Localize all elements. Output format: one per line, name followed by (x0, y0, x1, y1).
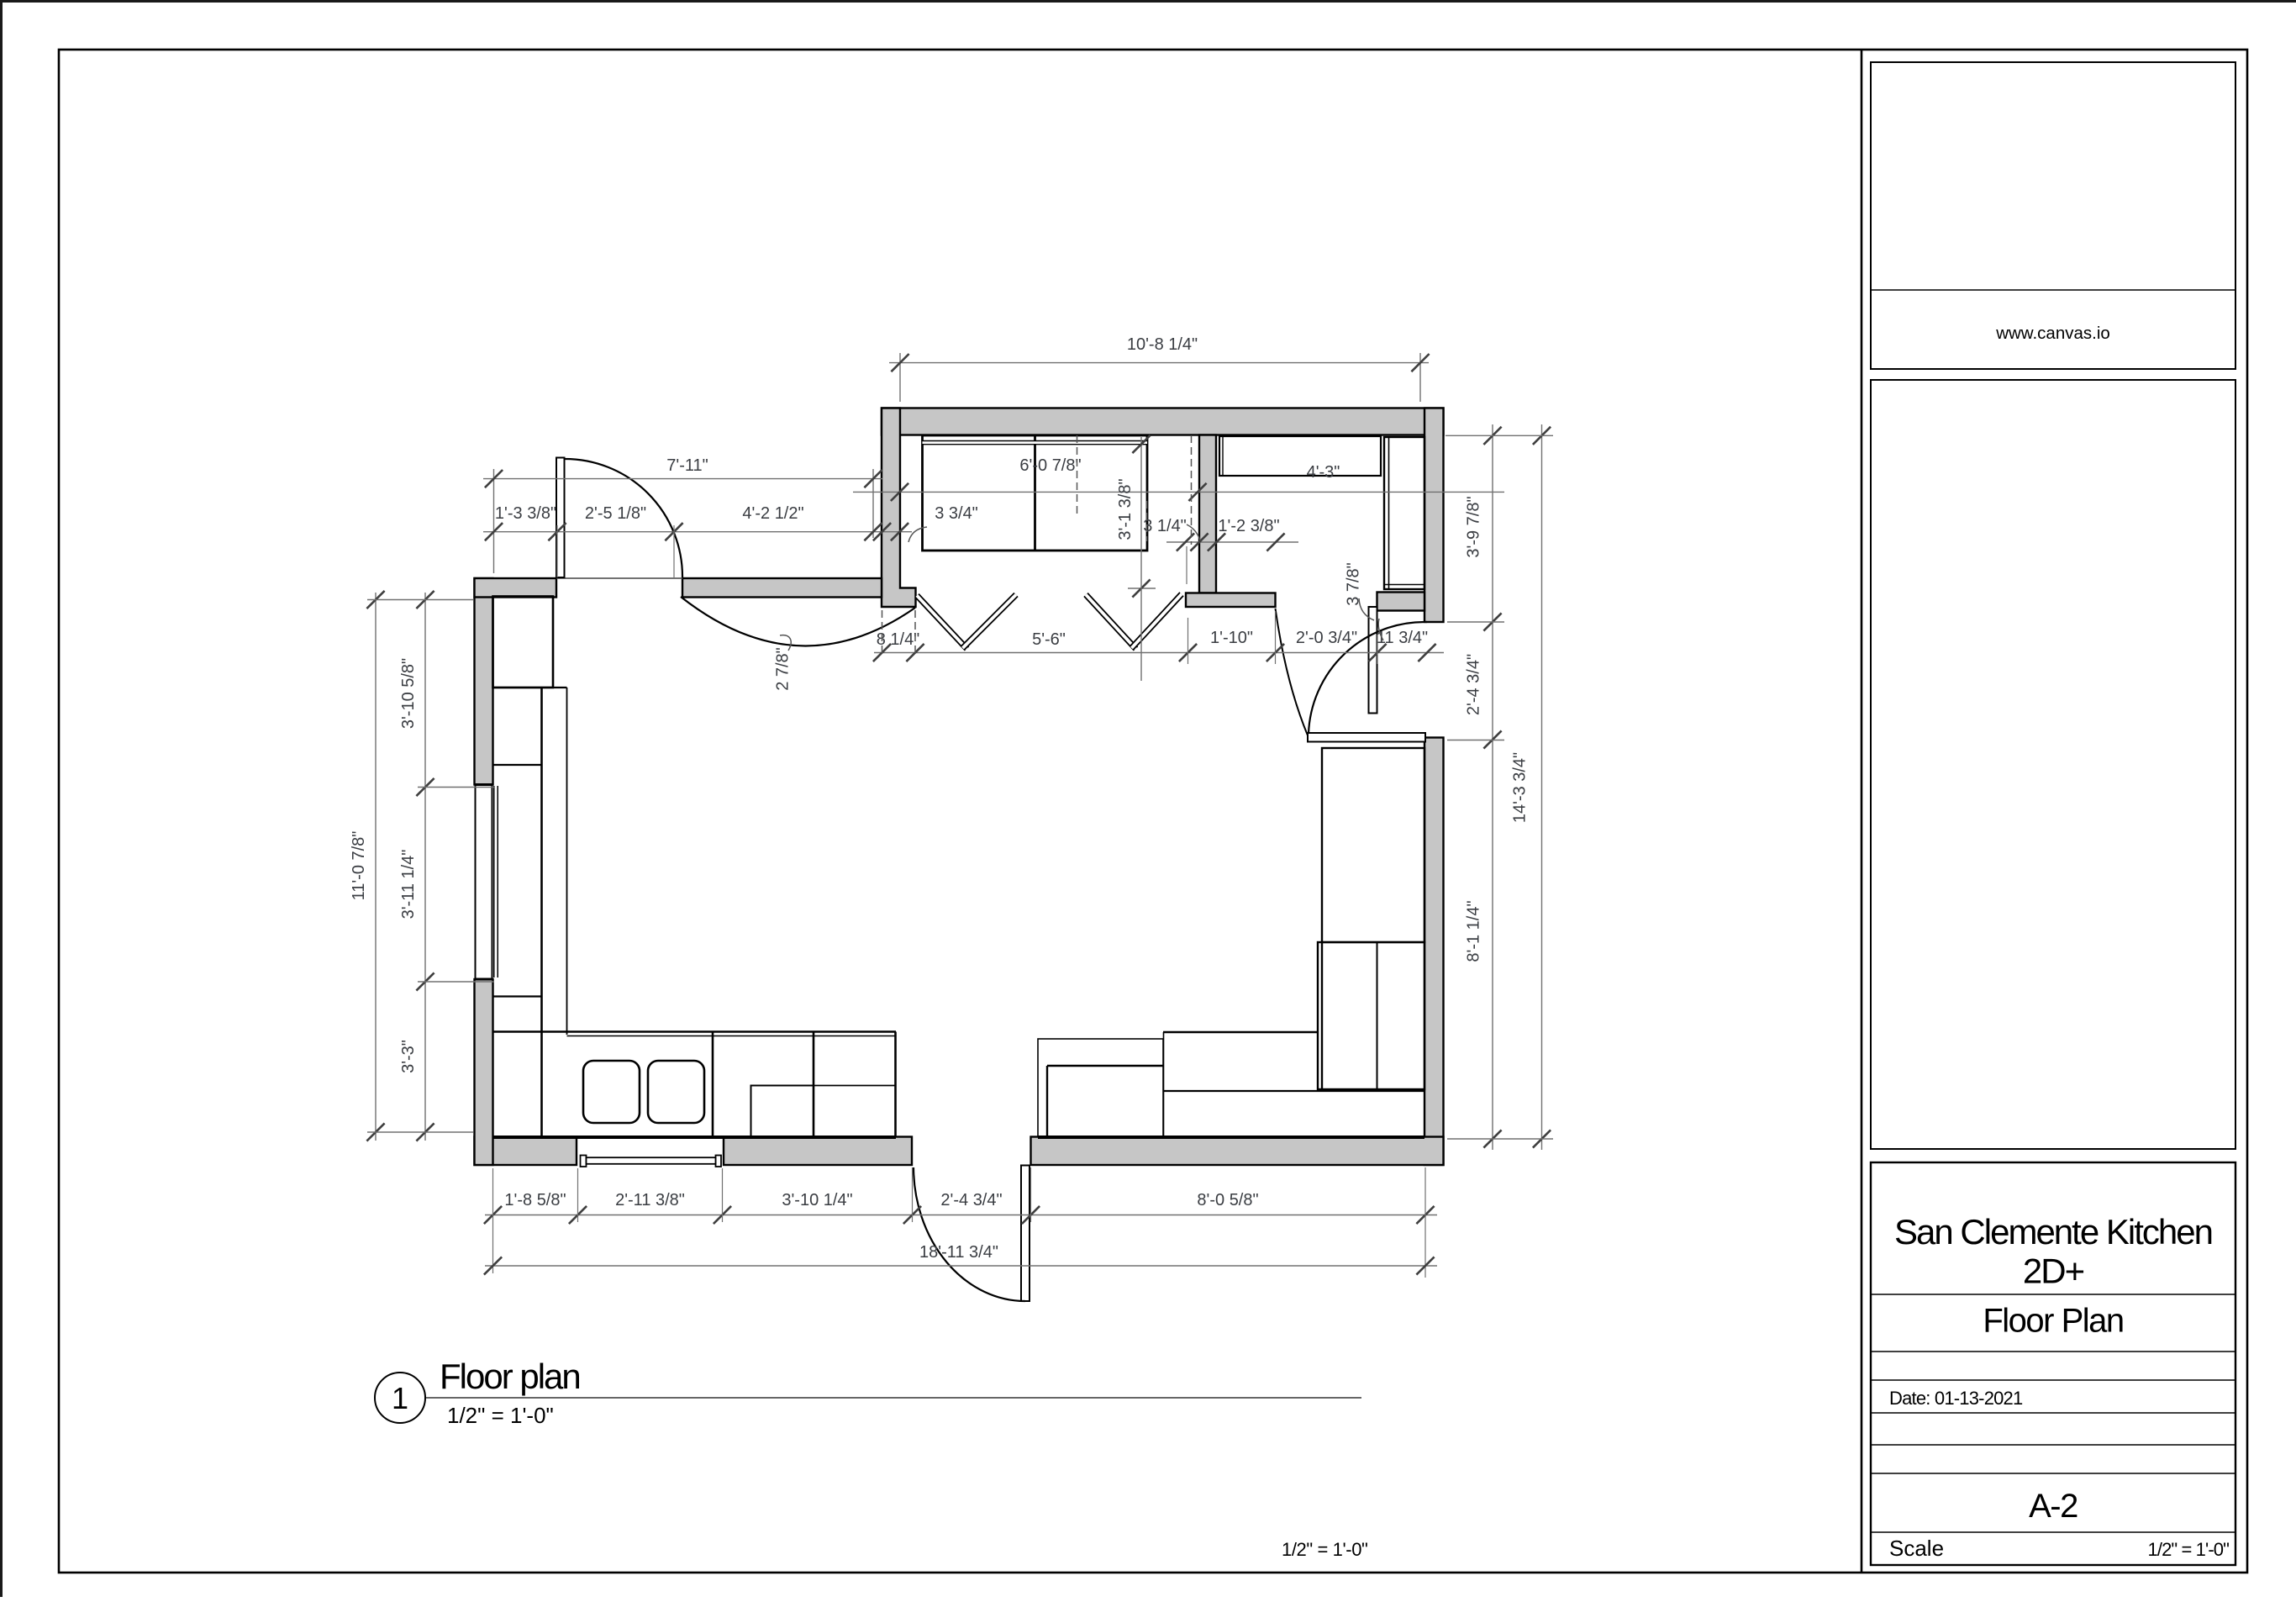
svg-text:3'-9 7/8": 3'-9 7/8" (1465, 496, 1483, 557)
svg-text:1'-10": 1'-10" (1210, 629, 1253, 647)
svg-text:www.canvas.io: www.canvas.io (1995, 324, 2110, 343)
svg-text:7'-11": 7'-11" (666, 456, 708, 475)
svg-text:1/2" = 1'-0": 1/2" = 1'-0" (447, 1403, 554, 1428)
svg-text:1'-2 3/8": 1'-2 3/8" (1218, 517, 1279, 535)
svg-text:2D+: 2D+ (2023, 1252, 2084, 1291)
svg-text:5'-6": 5'-6" (1032, 630, 1066, 649)
svg-text:2'-4 3/4": 2'-4 3/4" (1465, 654, 1483, 715)
svg-text:2'-5 1/8": 2'-5 1/8" (585, 504, 646, 523)
svg-text:8 1/4": 8 1/4" (877, 630, 920, 649)
svg-text:3'-10 1/4": 3'-10 1/4" (782, 1191, 852, 1209)
svg-text:3'-1 3/8": 3'-1 3/8" (1116, 478, 1135, 540)
svg-text:1/2" = 1'-0": 1/2" = 1'-0" (1282, 1539, 1367, 1560)
svg-text:14'-3 3/4": 14'-3 3/4" (1511, 752, 1530, 823)
svg-text:3 7/8": 3 7/8" (1345, 562, 1363, 606)
svg-text:Floor Plan: Floor Plan (1983, 1303, 2123, 1340)
svg-text:2'-4 3/4": 2'-4 3/4" (940, 1191, 1002, 1209)
svg-text:A-2: A-2 (2029, 1488, 2077, 1525)
svg-text:11 3/4": 11 3/4" (1377, 629, 1428, 647)
svg-text:3'-10 5/8": 3'-10 5/8" (399, 658, 418, 729)
svg-text:Date: 01-13-2021: Date: 01-13-2021 (1889, 1388, 2023, 1409)
svg-text:1'-3 3/8": 1'-3 3/8" (495, 504, 556, 523)
svg-text:2 7/8": 2 7/8" (774, 647, 793, 691)
svg-text:Scale: Scale (1889, 1536, 1944, 1561)
svg-text:6'-0 7/8": 6'-0 7/8" (1019, 456, 1081, 475)
svg-text:10'-8 1/4": 10'-8 1/4" (1127, 335, 1198, 354)
svg-text:1'-8 5/8": 1'-8 5/8" (504, 1191, 566, 1209)
svg-text:3'-3": 3'-3" (399, 1040, 418, 1073)
svg-text:1: 1 (392, 1381, 408, 1415)
svg-text:8'-0 5/8": 8'-0 5/8" (1197, 1191, 1258, 1209)
svg-text:11'-0 7/8": 11'-0 7/8" (350, 831, 368, 901)
svg-text:1/2" = 1'-0": 1/2" = 1'-0" (2148, 1539, 2230, 1560)
svg-text:2'-0 3/4": 2'-0 3/4" (1296, 629, 1357, 647)
svg-text:4'-3": 4'-3" (1307, 463, 1340, 482)
svg-text:4'-2 1/2": 4'-2 1/2" (742, 504, 803, 523)
svg-text:3'-11 1/4": 3'-11 1/4" (399, 850, 418, 920)
svg-text:2'-11 3/8": 2'-11 3/8" (615, 1191, 685, 1209)
svg-text:Floor plan: Floor plan (440, 1357, 580, 1396)
svg-text:8'-1 1/4": 8'-1 1/4" (1465, 900, 1483, 962)
svg-text:18'-11 3/4": 18'-11 3/4" (919, 1243, 998, 1262)
svg-text:San Clemente Kitchen: San Clemente Kitchen (1894, 1212, 2212, 1252)
svg-text:3 1/4": 3 1/4" (1143, 517, 1187, 535)
svg-text:3 3/4": 3 3/4" (935, 504, 978, 523)
